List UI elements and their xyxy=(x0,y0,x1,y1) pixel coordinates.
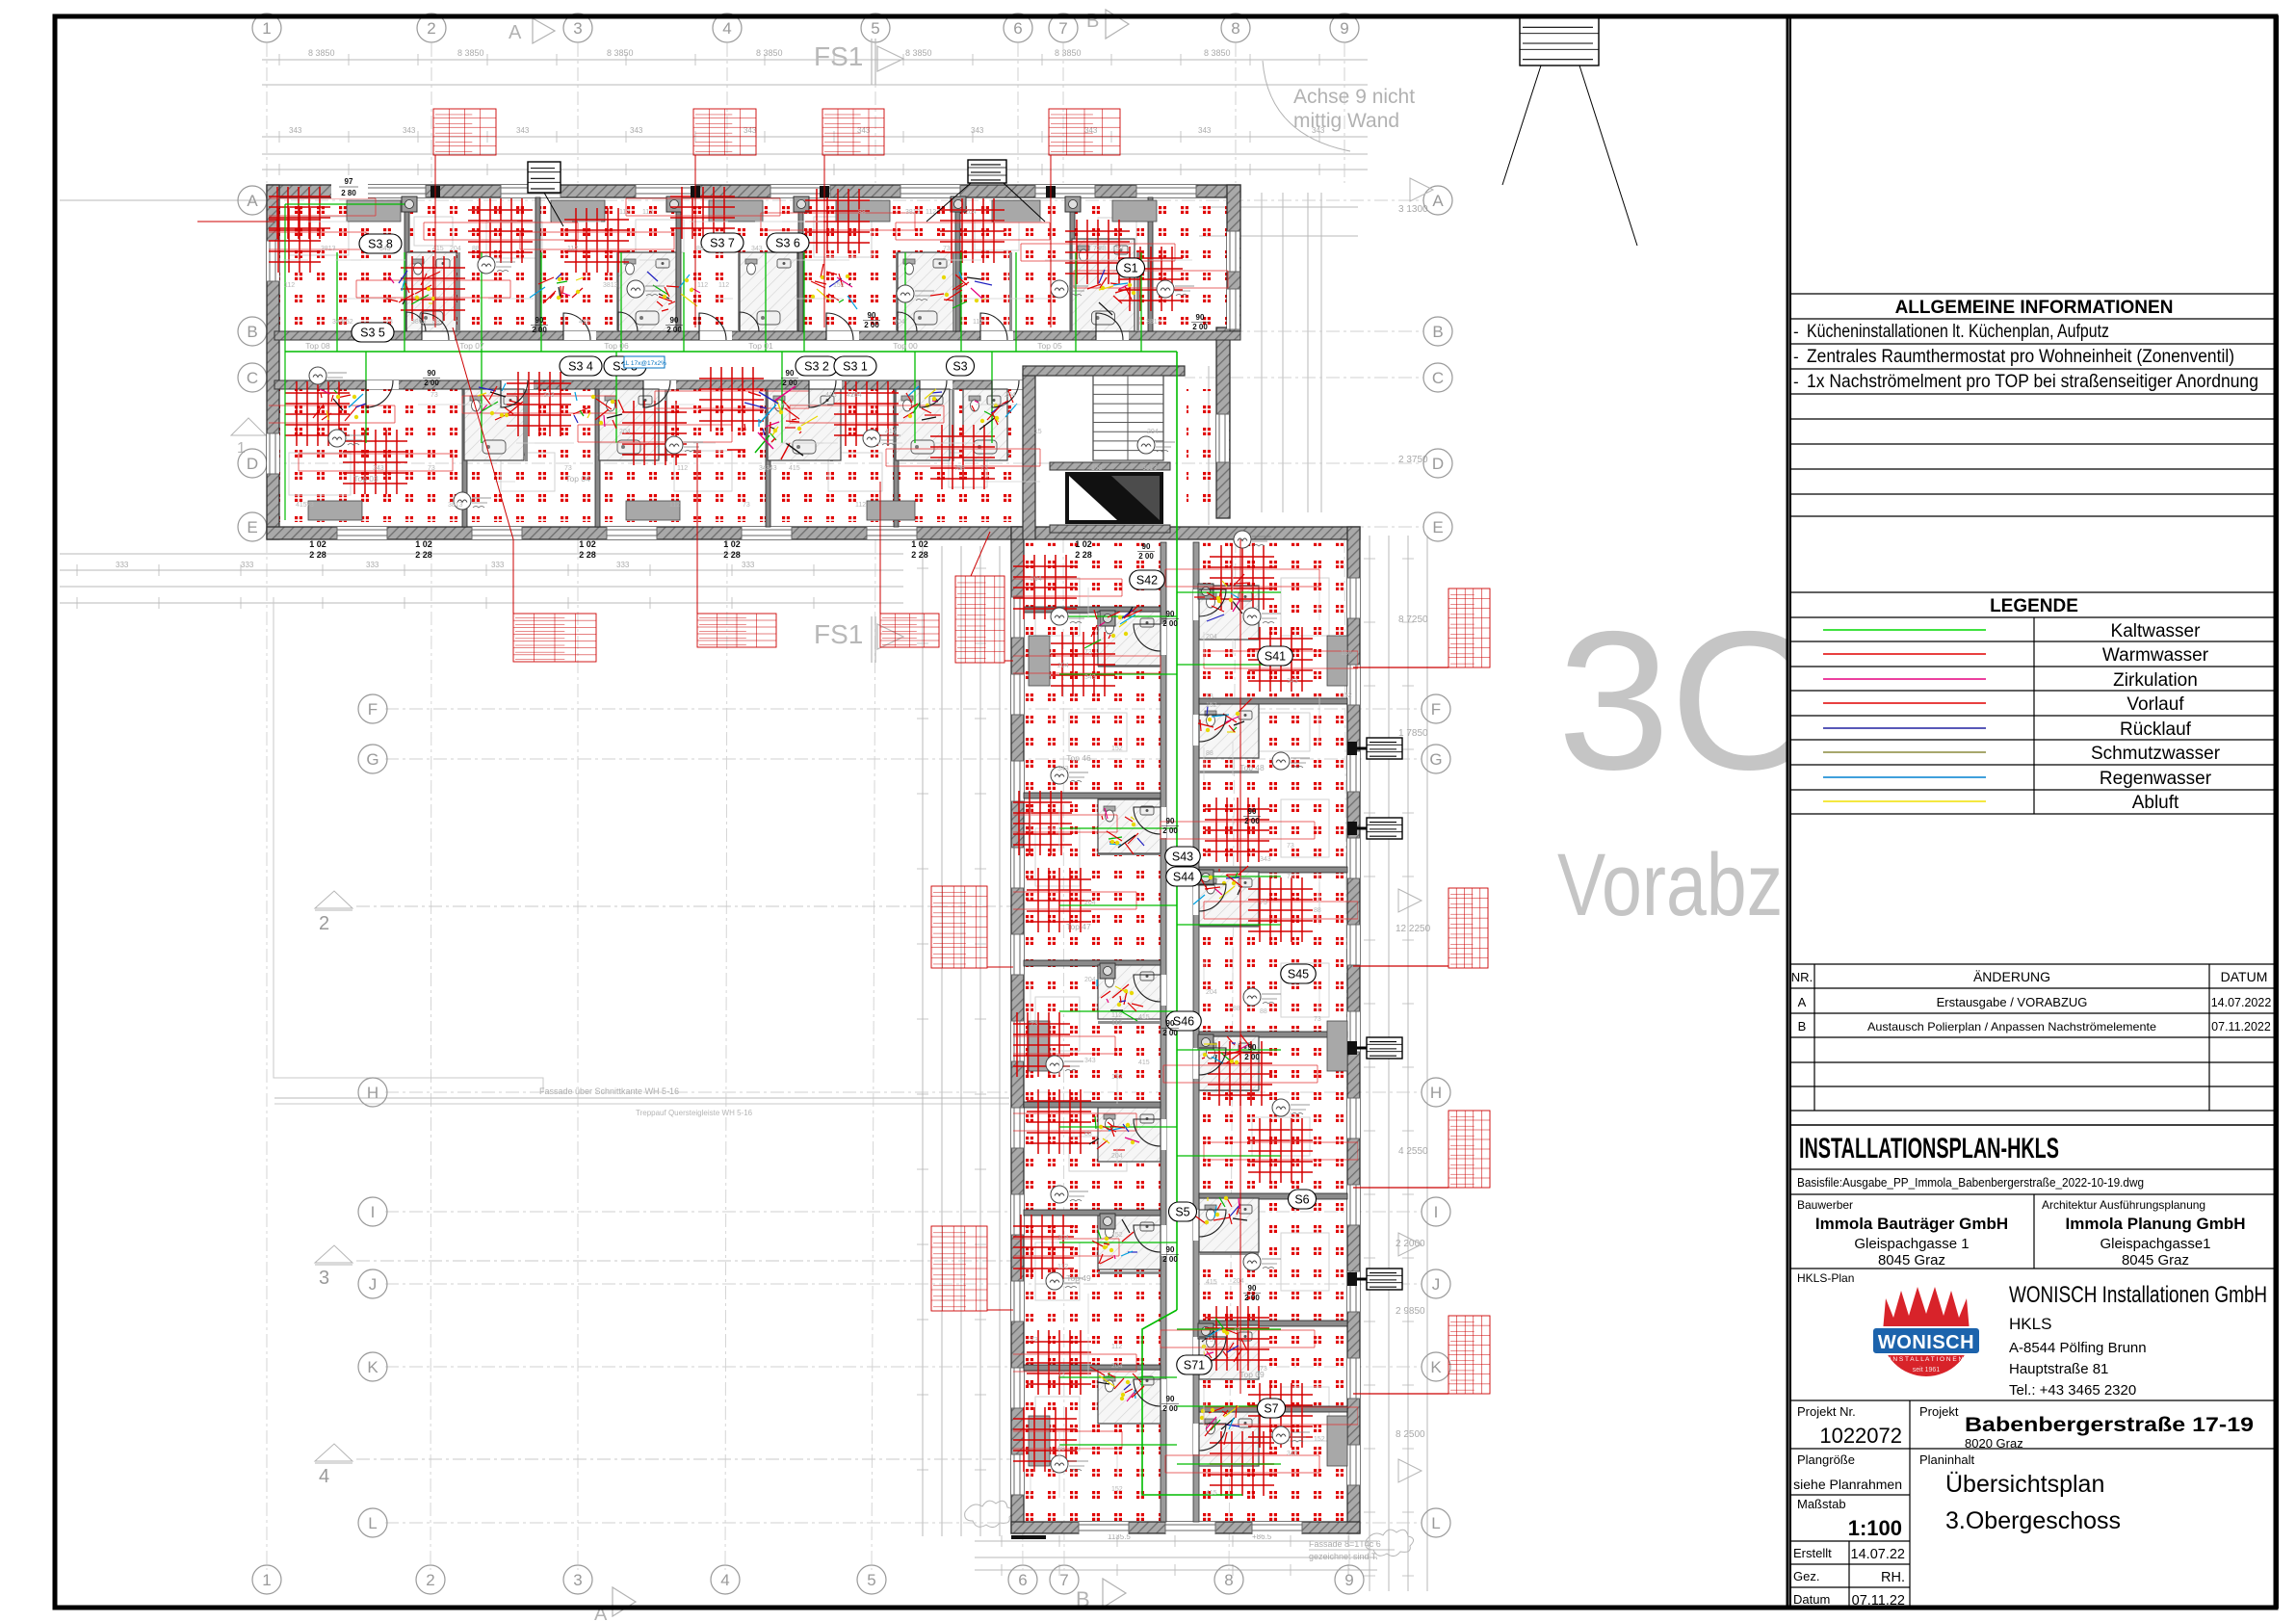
svg-text:3 1300: 3 1300 xyxy=(1398,204,1428,215)
svg-text:2 28: 2 28 xyxy=(1075,550,1092,560)
svg-text:L: L xyxy=(368,1514,377,1532)
svg-text:S3: S3 xyxy=(952,360,967,374)
svg-text:8 3850: 8 3850 xyxy=(756,48,783,58)
svg-text:204: 204 xyxy=(1206,634,1217,641)
svg-text:3813: 3813 xyxy=(321,246,336,252)
svg-text:415: 415 xyxy=(1138,1014,1150,1021)
svg-text:415: 415 xyxy=(885,429,897,435)
svg-text:90: 90 xyxy=(1248,807,1257,816)
svg-text:-: - xyxy=(1793,323,1799,341)
svg-text:73: 73 xyxy=(430,392,438,399)
svg-text:90: 90 xyxy=(1142,542,1151,551)
svg-text:C: C xyxy=(247,369,258,387)
svg-text:ALLGEMEINE INFORMATIONEN: ALLGEMEINE INFORMATIONEN xyxy=(1895,298,2174,318)
svg-text:2 00: 2 00 xyxy=(782,379,797,387)
svg-text:3: 3 xyxy=(573,19,582,38)
svg-text:90: 90 xyxy=(786,369,795,378)
svg-text:2 80: 2 80 xyxy=(341,189,356,197)
svg-text:S1: S1 xyxy=(1123,262,1137,275)
svg-text:A: A xyxy=(247,192,258,210)
svg-text:2 00: 2 00 xyxy=(1162,1029,1178,1037)
svg-text:FS1: FS1 xyxy=(814,41,863,71)
svg-text:Babenbergerstraße 17-19: Babenbergerstraße 17-19 xyxy=(1965,1414,2254,1436)
svg-text:Fassade über Schnittkante WH 5: Fassade über Schnittkante WH 5-16 xyxy=(539,1086,679,1096)
svg-text:73: 73 xyxy=(1084,649,1092,656)
svg-text:2 28: 2 28 xyxy=(579,550,596,560)
svg-text:7: 7 xyxy=(1059,1571,1068,1589)
svg-text:1x Nachströmelment pro TOP bei: 1x Nachströmelment pro TOP bei straßense… xyxy=(1807,372,2258,392)
svg-text:2 28: 2 28 xyxy=(415,550,432,560)
svg-text:S6: S6 xyxy=(1294,1193,1309,1207)
svg-text:4: 4 xyxy=(720,1571,729,1589)
svg-text:152: 152 xyxy=(1112,246,1124,252)
svg-text:343: 343 xyxy=(1084,1058,1096,1064)
svg-text:415: 415 xyxy=(825,392,837,399)
svg-text:415: 415 xyxy=(789,465,800,472)
svg-text:Erstausgabe / VORABZUG: Erstausgabe / VORABZUG xyxy=(1937,995,2088,1009)
svg-text:9: 9 xyxy=(1340,19,1348,38)
svg-text:8 3850: 8 3850 xyxy=(308,48,335,58)
svg-text:343: 343 xyxy=(759,465,770,472)
svg-text:S41: S41 xyxy=(1265,650,1286,664)
svg-text:07.11.22: 07.11.22 xyxy=(1852,1593,1905,1609)
svg-text:204: 204 xyxy=(965,209,977,216)
svg-text:343: 343 xyxy=(1287,678,1298,685)
svg-text:Gleispachgasse 1: Gleispachgasse 1 xyxy=(1854,1236,1969,1252)
svg-text:204: 204 xyxy=(1233,1278,1244,1285)
svg-text:1022072: 1022072 xyxy=(1819,1424,1902,1448)
svg-text:2 00: 2 00 xyxy=(532,326,547,334)
svg-text:90: 90 xyxy=(1166,610,1175,618)
svg-text:1 02: 1 02 xyxy=(579,539,596,549)
svg-text:Regenwasser: Regenwasser xyxy=(2100,769,2212,789)
svg-text:Kaltwasser: Kaltwasser xyxy=(2111,621,2202,641)
svg-text:112: 112 xyxy=(669,502,680,509)
svg-text:88: 88 xyxy=(1314,907,1321,914)
svg-text:Top 05: Top 05 xyxy=(1037,341,1062,351)
svg-text:112: 112 xyxy=(855,502,866,509)
svg-text:333: 333 xyxy=(366,561,379,569)
svg-text:8045 Graz: 8045 Graz xyxy=(2122,1252,2189,1269)
svg-text:A: A xyxy=(509,22,522,43)
svg-text:204: 204 xyxy=(1031,576,1042,583)
svg-text:4: 4 xyxy=(722,19,731,38)
svg-text:152: 152 xyxy=(1111,1486,1123,1493)
svg-text:73: 73 xyxy=(1260,900,1267,906)
svg-text:333: 333 xyxy=(616,561,630,569)
svg-text:343: 343 xyxy=(1198,126,1212,135)
svg-text:B: B xyxy=(1086,11,1099,32)
svg-text:97: 97 xyxy=(345,177,353,186)
svg-text:Hauptstraße 81: Hauptstraße 81 xyxy=(2009,1361,2108,1377)
svg-text:112: 112 xyxy=(697,282,708,289)
svg-text:S7: S7 xyxy=(1264,1402,1278,1416)
svg-text:73: 73 xyxy=(564,465,572,472)
svg-text:73: 73 xyxy=(428,465,435,472)
svg-text:2 28: 2 28 xyxy=(309,550,326,560)
svg-text:2 28: 2 28 xyxy=(911,550,928,560)
svg-text:2: 2 xyxy=(319,913,329,934)
svg-text:152: 152 xyxy=(833,282,845,289)
svg-text:I N S T A L L A T I O N E N: I N S T A L L A T I O N E N xyxy=(1890,1356,1964,1363)
svg-text:73: 73 xyxy=(1206,693,1213,700)
svg-text:Schmutzwasser: Schmutzwasser xyxy=(2091,744,2221,764)
svg-text:Tel.: +43 3465 2320: Tel.: +43 3465 2320 xyxy=(2009,1382,2136,1399)
svg-text:112: 112 xyxy=(1057,1264,1068,1270)
svg-text:73: 73 xyxy=(943,246,951,252)
svg-text:333: 333 xyxy=(742,561,755,569)
svg-text:5: 5 xyxy=(871,19,879,38)
svg-text:2 00: 2 00 xyxy=(1244,1294,1260,1302)
svg-text:3813: 3813 xyxy=(603,282,618,289)
svg-text:ÄNDERUNG: ÄNDERUNG xyxy=(1973,969,2050,984)
svg-text:S43: S43 xyxy=(1172,850,1193,864)
svg-text:Kücheninstallationen lt. Küche: Kücheninstallationen lt. Küchenplan, Auf… xyxy=(1807,322,2109,342)
svg-text:DATUM: DATUM xyxy=(2221,969,2268,984)
svg-text:2: 2 xyxy=(426,1571,434,1589)
svg-text:88: 88 xyxy=(472,246,480,252)
svg-text:HKLS: HKLS xyxy=(2009,1315,2051,1333)
svg-text:NR.: NR. xyxy=(1791,970,1813,984)
svg-text:gezeichnet sind T.: gezeichnet sind T. xyxy=(1309,1552,1378,1561)
svg-text:RH.: RH. xyxy=(1881,1570,1905,1585)
svg-text:8045 Graz: 8045 Graz xyxy=(1878,1252,1945,1269)
svg-text:6: 6 xyxy=(1018,1571,1027,1589)
svg-text:14.07.2022: 14.07.2022 xyxy=(2211,996,2272,1009)
svg-text:1 02: 1 02 xyxy=(1075,539,1092,549)
svg-text:S3 7: S3 7 xyxy=(710,237,735,250)
svg-text:204: 204 xyxy=(1111,1363,1123,1370)
svg-text:Top 46: Top 46 xyxy=(1066,753,1091,763)
svg-text:90: 90 xyxy=(1166,1395,1175,1403)
svg-text:S5: S5 xyxy=(1175,1206,1189,1219)
svg-text:343: 343 xyxy=(289,126,302,135)
svg-text:3813: 3813 xyxy=(1146,319,1161,326)
svg-text:S45: S45 xyxy=(1288,968,1309,981)
svg-text:Projekt Nr.: Projekt Nr. xyxy=(1797,1404,1856,1419)
svg-text:112: 112 xyxy=(677,465,688,472)
svg-text:2 00: 2 00 xyxy=(1138,552,1154,561)
svg-text:A: A xyxy=(1798,995,1807,1009)
svg-text:WONISCH: WONISCH xyxy=(1878,1332,1974,1353)
svg-text:8 7250: 8 7250 xyxy=(1398,615,1428,625)
svg-text:1 02: 1 02 xyxy=(911,539,928,549)
svg-text:343: 343 xyxy=(751,246,763,252)
svg-text:9: 9 xyxy=(1344,1571,1353,1589)
svg-text:90: 90 xyxy=(1166,1019,1175,1028)
svg-text:204: 204 xyxy=(1057,663,1069,669)
svg-text:204: 204 xyxy=(1084,977,1096,983)
svg-text:S3 5: S3 5 xyxy=(360,327,385,340)
svg-text:2 00: 2 00 xyxy=(424,379,439,387)
svg-text:Vorlauf: Vorlauf xyxy=(2126,694,2184,715)
svg-text:3813: 3813 xyxy=(411,319,427,326)
svg-text:204: 204 xyxy=(1057,1235,1069,1242)
svg-text:Warmwasser: Warmwasser xyxy=(2102,645,2209,666)
svg-text:5: 5 xyxy=(867,1571,875,1589)
svg-text:Gleispachgasse1: Gleispachgasse1 xyxy=(2100,1236,2210,1252)
svg-text:152: 152 xyxy=(1111,746,1123,752)
svg-text:343: 343 xyxy=(1260,856,1271,863)
svg-text:Basisfile:Ausgabe_PP_Immola_Ba: Basisfile:Ausgabe_PP_Immola_Babenbergers… xyxy=(1797,1175,2144,1190)
svg-text:112: 112 xyxy=(642,209,653,216)
svg-text:204: 204 xyxy=(1004,392,1016,399)
svg-text:112: 112 xyxy=(973,319,983,326)
svg-text:-: - xyxy=(1793,373,1799,391)
svg-text:73: 73 xyxy=(1233,1327,1240,1334)
svg-text:73: 73 xyxy=(1287,843,1294,850)
svg-text:S42: S42 xyxy=(1136,574,1158,588)
svg-text:D: D xyxy=(247,455,258,473)
svg-text:Achse 9 nicht: Achse 9 nicht xyxy=(1293,86,1415,108)
svg-text:12 2250: 12 2250 xyxy=(1396,924,1431,934)
svg-text:343: 343 xyxy=(971,126,984,135)
svg-text:73: 73 xyxy=(1287,874,1294,880)
svg-text:E: E xyxy=(1432,518,1443,536)
svg-text:73: 73 xyxy=(1260,1366,1267,1373)
svg-text:88: 88 xyxy=(1057,1446,1065,1452)
svg-text:F: F xyxy=(1431,700,1441,719)
svg-text:Top 07: Top 07 xyxy=(459,341,484,351)
svg-text:Projekt: Projekt xyxy=(1919,1404,1959,1419)
svg-text:Top 49: Top 49 xyxy=(1066,1273,1091,1283)
svg-text:88: 88 xyxy=(1099,246,1107,252)
svg-text:4 2550: 4 2550 xyxy=(1398,1146,1428,1157)
svg-text:90: 90 xyxy=(428,369,436,378)
svg-text:WONISCH Installationen GmbH: WONISCH Installationen GmbH xyxy=(2009,1282,2267,1308)
svg-text:L: L xyxy=(1431,1514,1440,1532)
svg-text:204: 204 xyxy=(1147,429,1159,435)
svg-text:Top 08: Top 08 xyxy=(305,341,330,351)
svg-text:3.Obergeschoss: 3.Obergeschoss xyxy=(1945,1507,2121,1534)
svg-text:2: 2 xyxy=(427,19,435,38)
svg-text:204: 204 xyxy=(450,246,461,252)
svg-text:Top 48: Top 48 xyxy=(1239,763,1265,772)
svg-text:3813: 3813 xyxy=(905,209,921,216)
svg-text:2 00: 2 00 xyxy=(1244,1053,1260,1061)
svg-text:S3 1: S3 1 xyxy=(843,360,868,374)
svg-text:K: K xyxy=(1430,1358,1442,1376)
svg-text:A: A xyxy=(1432,192,1444,210)
svg-text:90: 90 xyxy=(1248,1043,1257,1052)
svg-text:H: H xyxy=(1430,1084,1442,1102)
svg-text:S44: S44 xyxy=(1173,871,1194,884)
svg-text:3813: 3813 xyxy=(1142,465,1158,472)
svg-text:Erstellt: Erstellt xyxy=(1793,1546,1832,1560)
svg-text:Zirkulation: Zirkulation xyxy=(2113,670,2198,691)
svg-text:90: 90 xyxy=(868,311,876,320)
svg-text:415: 415 xyxy=(579,319,590,326)
svg-text:2 00: 2 00 xyxy=(1162,619,1178,628)
svg-text:73: 73 xyxy=(1057,1372,1065,1378)
svg-text:112: 112 xyxy=(284,282,295,289)
svg-text:K: K xyxy=(367,1358,378,1376)
svg-text:S71: S71 xyxy=(1184,1359,1205,1373)
svg-text:73: 73 xyxy=(1206,1337,1213,1344)
svg-text:8 3850: 8 3850 xyxy=(607,48,634,58)
svg-text:S3 4: S3 4 xyxy=(568,360,593,374)
svg-text:415: 415 xyxy=(1206,1490,1217,1497)
svg-text:112: 112 xyxy=(718,282,729,289)
svg-text:Datum: Datum xyxy=(1793,1592,1830,1607)
svg-text:1: 1 xyxy=(262,1571,271,1589)
svg-text:S46: S46 xyxy=(1173,1015,1194,1029)
svg-text:1L 17x@17x2%: 1L 17x@17x2% xyxy=(622,360,666,367)
svg-text:-: - xyxy=(1793,348,1799,366)
svg-text:90: 90 xyxy=(1166,1245,1175,1254)
svg-text:LEGENDE: LEGENDE xyxy=(1990,596,2078,616)
svg-text:343: 343 xyxy=(1287,1451,1298,1457)
svg-text:Top 00: Top 00 xyxy=(893,341,918,351)
svg-text:333: 333 xyxy=(241,561,254,569)
svg-text:B: B xyxy=(1798,1019,1807,1033)
svg-text:Top 47: Top 47 xyxy=(1066,922,1091,931)
svg-text:A-8544 Pölfing Brunn: A-8544 Pölfing Brunn xyxy=(2009,1340,2147,1356)
svg-text:152: 152 xyxy=(1341,650,1352,657)
svg-text:88: 88 xyxy=(957,465,965,472)
svg-text:73: 73 xyxy=(1031,1337,1038,1344)
svg-text:Architektur Ausführungsplanung: Architektur Ausführungsplanung xyxy=(2042,1198,2205,1212)
svg-text:I: I xyxy=(1434,1203,1439,1221)
svg-text:D: D xyxy=(1432,455,1444,473)
svg-text:8 3850: 8 3850 xyxy=(1055,48,1082,58)
svg-text:112: 112 xyxy=(619,209,630,216)
svg-text:8: 8 xyxy=(1231,19,1239,38)
svg-text:90: 90 xyxy=(1248,1284,1257,1293)
svg-text:Maßstab: Maßstab xyxy=(1797,1497,1846,1511)
svg-text:2 00: 2 00 xyxy=(1162,826,1178,835)
svg-text:Treppauf Quersteigleiste WH 5-: Treppauf Quersteigleiste WH 5-16 xyxy=(636,1109,753,1117)
svg-text:343: 343 xyxy=(403,126,416,135)
svg-text:152: 152 xyxy=(1314,1436,1325,1443)
svg-text:112: 112 xyxy=(1111,1020,1122,1027)
svg-text:88: 88 xyxy=(432,319,440,326)
svg-text:88: 88 xyxy=(1260,1008,1267,1015)
svg-text:88: 88 xyxy=(1084,1131,1092,1138)
svg-text:343: 343 xyxy=(379,246,391,252)
svg-text:90: 90 xyxy=(535,316,544,325)
svg-text:415: 415 xyxy=(1138,1060,1150,1066)
svg-text:Immola Bauträger GmbH: Immola Bauträger GmbH xyxy=(1815,1215,2008,1233)
svg-text:415: 415 xyxy=(296,502,307,509)
svg-text:Gez.: Gez. xyxy=(1793,1569,1819,1583)
svg-text:Übersichtsplan: Übersichtsplan xyxy=(1945,1471,2104,1498)
svg-text:415: 415 xyxy=(432,246,444,252)
svg-text:1: 1 xyxy=(262,19,271,38)
svg-text:8 3850: 8 3850 xyxy=(1204,48,1231,58)
svg-text:Rücklauf: Rücklauf xyxy=(2120,719,2192,740)
svg-text:B: B xyxy=(1432,323,1443,341)
svg-text:88: 88 xyxy=(1233,1006,1240,1012)
svg-text:90: 90 xyxy=(1166,817,1175,825)
svg-text:2 00: 2 00 xyxy=(666,326,682,334)
svg-text:H: H xyxy=(367,1084,378,1102)
svg-text:G: G xyxy=(366,750,378,769)
svg-text:88: 88 xyxy=(858,209,866,216)
svg-text:B: B xyxy=(247,323,257,341)
svg-text:8 3850: 8 3850 xyxy=(457,48,484,58)
svg-text:73: 73 xyxy=(385,319,393,326)
svg-text:2 00: 2 00 xyxy=(864,321,879,329)
svg-text:73: 73 xyxy=(1031,1021,1038,1028)
svg-text:343: 343 xyxy=(1057,766,1069,772)
svg-text:73: 73 xyxy=(306,502,314,509)
svg-text:8 3850: 8 3850 xyxy=(905,48,932,58)
svg-text:4: 4 xyxy=(319,1466,329,1487)
svg-text:8020 Graz: 8020 Graz xyxy=(1965,1436,2023,1451)
svg-text:2 28: 2 28 xyxy=(723,550,741,560)
svg-text:Zentrales Raumthermostat pro W: Zentrales Raumthermostat pro Wohneinheit… xyxy=(1807,347,2234,367)
svg-text:204: 204 xyxy=(894,319,905,326)
svg-text:152: 152 xyxy=(1341,693,1352,699)
svg-text:343: 343 xyxy=(516,126,530,135)
svg-text:Austausch Polierplan / Anpasse: Austausch Polierplan / Anpassen Nachströ… xyxy=(1867,1020,2156,1033)
svg-text:3: 3 xyxy=(573,1571,582,1589)
svg-text:343: 343 xyxy=(630,126,643,135)
svg-text:1 02: 1 02 xyxy=(415,539,432,549)
svg-text:F: F xyxy=(368,700,378,719)
svg-text:2 00: 2 00 xyxy=(1192,323,1208,331)
svg-text:07.11.2022: 07.11.2022 xyxy=(2211,1020,2271,1033)
svg-text:73: 73 xyxy=(980,465,988,472)
svg-text:90: 90 xyxy=(1196,313,1205,322)
svg-text:90: 90 xyxy=(670,316,679,325)
svg-text:204: 204 xyxy=(1084,900,1096,906)
svg-text:88: 88 xyxy=(696,246,704,252)
svg-text:112: 112 xyxy=(567,246,578,252)
svg-text:HKLS-Plan: HKLS-Plan xyxy=(1797,1271,1854,1285)
svg-text:3: 3 xyxy=(319,1268,329,1289)
svg-text:152: 152 xyxy=(1206,702,1217,709)
svg-text:Top 06: Top 06 xyxy=(604,341,629,351)
svg-text:Planinhalt: Planinhalt xyxy=(1919,1452,1974,1467)
svg-text:FS1: FS1 xyxy=(814,619,863,649)
svg-text:I: I xyxy=(371,1203,376,1221)
svg-text:Immola Planung GmbH: Immola Planung GmbH xyxy=(2065,1215,2245,1233)
svg-text:3813: 3813 xyxy=(448,502,463,509)
svg-text:S3 6: S3 6 xyxy=(775,237,800,250)
svg-text:Top 01: Top 01 xyxy=(748,341,773,351)
svg-text:1:100: 1:100 xyxy=(1848,1516,1902,1540)
svg-text:73: 73 xyxy=(743,502,750,509)
svg-text:J: J xyxy=(369,1275,378,1294)
svg-text:2 9850: 2 9850 xyxy=(1396,1306,1425,1317)
svg-text:E: E xyxy=(247,518,257,536)
svg-text:Plangröße: Plangröße xyxy=(1797,1452,1855,1467)
svg-text:73: 73 xyxy=(1314,1016,1321,1023)
svg-text:343: 343 xyxy=(373,465,384,472)
svg-text:Fassade 8=1T4c 6: Fassade 8=1T4c 6 xyxy=(1309,1539,1381,1549)
svg-text:88: 88 xyxy=(1206,750,1213,757)
svg-text:14.07.22: 14.07.22 xyxy=(1851,1547,1905,1562)
svg-text:333: 333 xyxy=(116,561,129,569)
svg-text:8 2500: 8 2500 xyxy=(1396,1429,1425,1440)
svg-text:1 02: 1 02 xyxy=(723,539,741,549)
svg-text:152: 152 xyxy=(1091,465,1103,472)
svg-text:333: 333 xyxy=(491,561,505,569)
svg-text:2 00: 2 00 xyxy=(1162,1404,1178,1413)
svg-text:siehe Planrahmen: siehe Planrahmen xyxy=(1793,1477,1902,1492)
svg-text:Abluft: Abluft xyxy=(2132,793,2179,813)
svg-text:343: 343 xyxy=(1084,674,1096,681)
svg-text:G: G xyxy=(1429,750,1442,769)
svg-text:415: 415 xyxy=(1031,429,1042,435)
svg-text:INSTALLATIONSPLAN-HKLS: INSTALLATIONSPLAN-HKLS xyxy=(1799,1133,2059,1164)
svg-text:343: 343 xyxy=(543,392,555,399)
svg-text:2 00: 2 00 xyxy=(1162,1255,1178,1264)
svg-text:112: 112 xyxy=(1111,1344,1122,1350)
svg-text:1 02: 1 02 xyxy=(309,539,326,549)
